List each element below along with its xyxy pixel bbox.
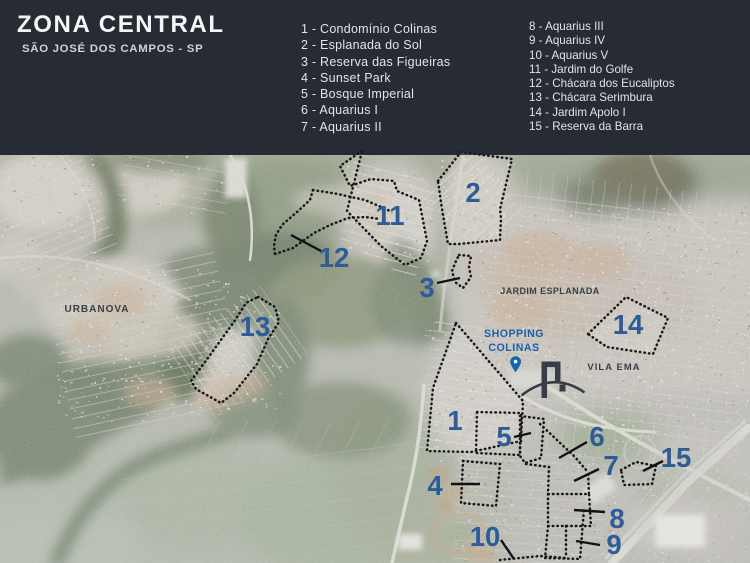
svg-text:3: 3 — [419, 272, 434, 303]
svg-text:7: 7 — [603, 450, 618, 481]
svg-text:COLINAS: COLINAS — [488, 342, 539, 354]
svg-text:9: 9 — [606, 529, 621, 560]
svg-text:15: 15 — [661, 442, 692, 473]
svg-text:5: 5 — [496, 421, 511, 452]
svg-text:14: 14 — [613, 309, 644, 340]
svg-text:4: 4 — [427, 470, 443, 501]
svg-text:2: 2 — [465, 177, 480, 208]
svg-text:JARDIM ESPLANADA: JARDIM ESPLANADA — [500, 286, 600, 296]
svg-text:12: 12 — [319, 242, 350, 273]
svg-text:11: 11 — [375, 200, 404, 231]
svg-text:VILA EMA: VILA EMA — [587, 361, 640, 372]
svg-text:6: 6 — [589, 421, 604, 452]
svg-text:10: 10 — [470, 521, 501, 552]
svg-text:13: 13 — [240, 311, 271, 342]
svg-text:URBANOVA: URBANOVA — [64, 304, 129, 315]
svg-text:1: 1 — [447, 405, 462, 436]
svg-text:SHOPPING: SHOPPING — [484, 328, 544, 340]
